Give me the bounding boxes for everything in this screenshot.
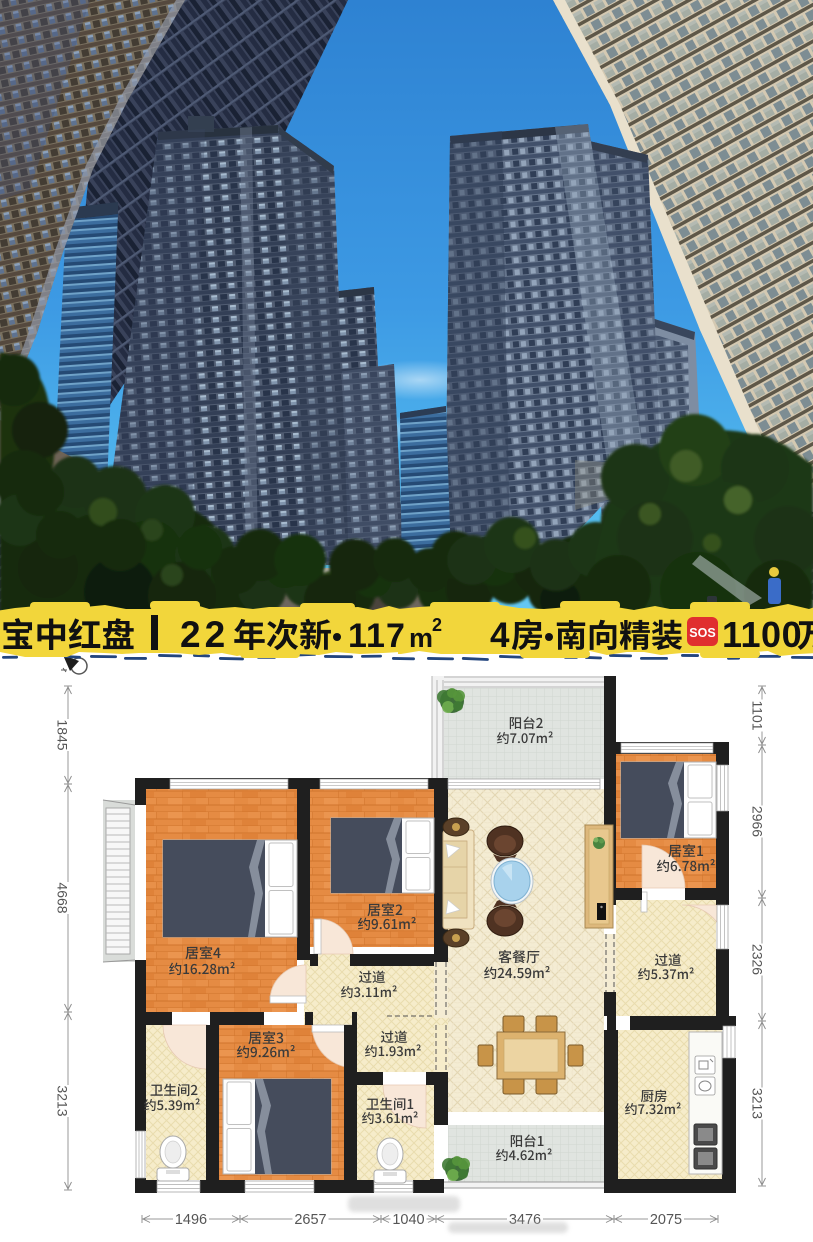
svg-text:1496: 1496 [175, 1212, 207, 1228]
svg-text:3213: 3213 [749, 1088, 765, 1119]
svg-text:1100: 1100 [722, 614, 802, 655]
svg-text:3213: 3213 [54, 1085, 70, 1116]
svg-text:2: 2 [432, 615, 442, 635]
svg-text:SOS: SOS [689, 626, 715, 640]
svg-text:2657: 2657 [294, 1212, 326, 1228]
svg-text:1845: 1845 [54, 719, 70, 750]
svg-text:1040: 1040 [392, 1212, 424, 1228]
svg-text:m: m [409, 623, 433, 653]
svg-text:4668: 4668 [54, 882, 70, 913]
svg-text:1101: 1101 [749, 700, 765, 730]
svg-text:2326: 2326 [749, 944, 765, 975]
svg-text:2966: 2966 [749, 806, 765, 837]
svg-text:22: 22 [180, 614, 229, 655]
svg-text:2075: 2075 [650, 1212, 682, 1228]
svg-text:4: 4 [490, 616, 510, 655]
svg-text:117: 117 [348, 617, 406, 655]
